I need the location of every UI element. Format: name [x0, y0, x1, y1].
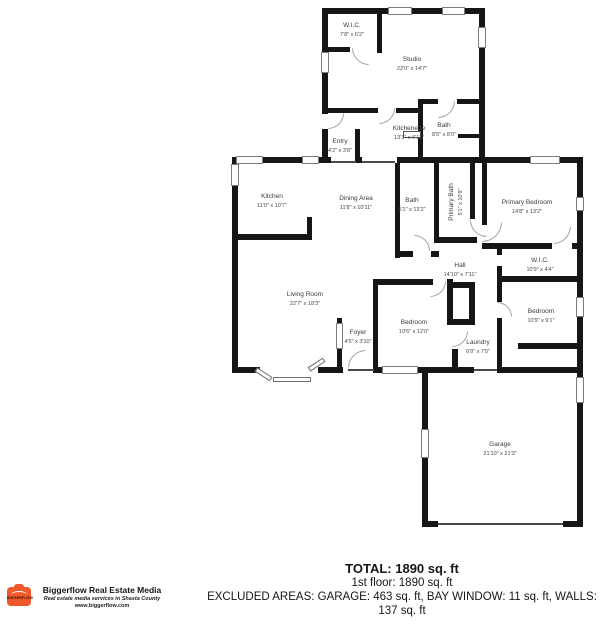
wall	[307, 217, 312, 240]
room-name: Hall	[444, 261, 477, 271]
room-name: W.I.C.	[526, 256, 553, 266]
wall	[497, 243, 552, 249]
wall	[457, 99, 484, 104]
room-name: Kitchen	[257, 192, 287, 202]
wall	[377, 8, 382, 53]
excluded-areas-text: EXCLUDED AREAS: GARAGE: 463 sq. ft, BAY …	[202, 590, 600, 618]
room-label-studio: Studio22'0" x 14'7"	[397, 55, 427, 73]
door-arc	[470, 220, 487, 237]
door-threshold	[438, 523, 563, 525]
room-label-bedroom-right: Bedroom10'9" x 9'1"	[527, 307, 554, 325]
room-label-hall: Hall14'10" x 7'11"	[444, 261, 477, 279]
room-name: Bath	[398, 196, 425, 206]
door-arc	[553, 226, 571, 244]
room-label-primary-bedroom: Primary Bedroom14'8" x 13'2"	[502, 198, 553, 216]
wall	[452, 282, 475, 288]
window	[530, 156, 560, 164]
wall	[572, 243, 577, 249]
door-arc	[352, 48, 369, 65]
door-arc	[497, 302, 512, 317]
room-name: Bath	[432, 121, 456, 131]
wall	[469, 282, 475, 324]
window	[231, 164, 239, 186]
room-name: Foyer	[344, 328, 371, 338]
room-name: Studio	[397, 55, 427, 65]
bay-window	[273, 377, 311, 382]
room-name: Primary Bath	[447, 183, 457, 221]
room-label-bedroom-left: Bedroom10'6" x 12'0"	[399, 318, 429, 336]
room-label-foyer: Foyer4'5" x 3'10"	[344, 328, 371, 346]
window	[388, 7, 412, 15]
room-dimensions: 5'1" x 13'2"	[398, 206, 425, 214]
room-dimensions: 11'0" x 10'7"	[257, 202, 287, 210]
room-dimensions: 5'1" x 10'9"	[457, 183, 465, 221]
room-dimensions: 10'6" x 12'0"	[399, 328, 429, 336]
wall	[431, 251, 439, 257]
company-tagline: Real estate media services in Shasta Cou…	[37, 596, 167, 603]
door-threshold	[474, 369, 497, 371]
room-label-garage: Garage21'10" x 21'3"	[483, 440, 516, 458]
wall	[497, 367, 583, 373]
bag-handle-shape	[14, 584, 24, 590]
room-label-wic-primary: W.I.C.10'9" x 4'4"	[526, 256, 553, 274]
room-name: Kitchenette	[393, 124, 426, 134]
wall	[497, 243, 502, 255]
wall	[375, 279, 433, 285]
door-arc	[438, 101, 455, 118]
company-text-block: Biggerflow Real Estate Media Real estate…	[37, 585, 167, 610]
wall	[395, 251, 413, 257]
room-label-kitchenette: Kitchenette13'3" x 6'11"	[393, 124, 426, 142]
wall	[497, 318, 502, 373]
room-dimensions: 22'7" x 18'3"	[287, 300, 323, 308]
room-label-laundry: Laundry6'9" x 7'5"	[466, 338, 490, 356]
wall	[434, 237, 477, 243]
window	[421, 429, 429, 458]
room-dimensions: 11'8" x 10'11"	[339, 204, 373, 212]
total-area-text: TOTAL: 1890 sq. ft	[202, 561, 600, 576]
area-summary: TOTAL: 1890 sq. ft 1st floor: 1890 sq. f…	[202, 561, 600, 624]
bay-window	[255, 367, 273, 381]
wall	[458, 134, 484, 138]
room-dimensions: 8'5" x 8'0"	[432, 131, 456, 139]
room-label-bath-studio: Bath8'5" x 8'0"	[432, 121, 456, 139]
room-dimensions: 6'9" x 7'5"	[466, 348, 490, 356]
room-dimensions: 22'0" x 14'7"	[397, 65, 427, 73]
room-name: Bedroom	[399, 318, 429, 328]
room-label-entry: Entry4'2" x 3'8"	[328, 137, 352, 155]
room-dimensions: 21'10" x 21'3"	[483, 450, 516, 458]
wall	[518, 343, 577, 349]
door-threshold	[362, 161, 395, 163]
room-name: Garage	[483, 440, 516, 450]
door-threshold	[331, 161, 356, 163]
camera-bag-icon: BIGGERFLOW	[7, 587, 31, 606]
wall	[418, 99, 438, 104]
window	[236, 156, 263, 164]
room-label-wic-studio: W.I.C.7'8" x 6'2"	[340, 21, 364, 39]
room-dimensions: 4'2" x 3'8"	[328, 147, 352, 155]
room-name: Bedroom	[527, 307, 554, 317]
wall	[422, 521, 438, 527]
wall	[563, 521, 583, 527]
wall	[373, 279, 378, 373]
room-name: Entry	[328, 137, 352, 147]
room-dimensions: 10'9" x 9'1"	[527, 317, 554, 325]
badge-text: BIGGERFLOW	[7, 596, 31, 600]
room-label-dining-area: Dining Area11'8" x 10'11"	[339, 194, 373, 212]
wall	[452, 349, 458, 367]
door-arc	[430, 281, 446, 297]
floorplan-page: W.I.C.7'8" x 6'2"Studio22'0" x 14'7"Kitc…	[0, 0, 600, 624]
wall	[497, 276, 577, 282]
window	[576, 377, 584, 403]
room-dimensions: 14'8" x 13'2"	[502, 208, 553, 216]
room-dimensions: 7'8" x 6'2"	[340, 31, 364, 39]
room-label-primary-bath: Primary Bath5'1" x 10'9"	[447, 183, 465, 221]
company-name: Biggerflow Real Estate Media	[37, 585, 167, 596]
wall	[397, 157, 530, 163]
room-dimensions: 14'10" x 7'11"	[444, 271, 477, 279]
company-website: www.biggerflow.com	[37, 603, 167, 610]
wall	[470, 163, 475, 219]
room-label-bath-main: Bath5'1" x 13'2"	[398, 196, 425, 214]
wall	[232, 234, 312, 240]
room-name: Primary Bedroom	[502, 198, 553, 208]
door-arc	[328, 113, 344, 129]
wall	[482, 163, 487, 225]
window	[442, 7, 465, 15]
room-name: Living Room	[287, 290, 323, 300]
room-dimensions: 10'9" x 4'4"	[526, 266, 553, 274]
room-name: Laundry	[466, 338, 490, 348]
door-arc	[379, 108, 395, 124]
door-arc	[414, 235, 430, 251]
room-name: Dining Area	[339, 194, 373, 204]
window	[302, 156, 319, 164]
window	[576, 197, 584, 211]
room-label-kitchen: Kitchen11'0" x 10'7"	[257, 192, 287, 210]
window	[576, 297, 584, 317]
window	[478, 27, 486, 48]
room-dimensions: 4'5" x 3'10"	[344, 338, 371, 346]
door-threshold	[348, 369, 374, 371]
window	[382, 366, 418, 374]
room-dimensions: 13'3" x 6'11"	[393, 134, 426, 142]
wall	[434, 163, 439, 243]
window	[336, 323, 343, 349]
door-arc	[348, 350, 366, 368]
wall	[577, 157, 583, 527]
room-label-living-room: Living Room22'7" x 18'3"	[287, 290, 323, 308]
room-name: W.I.C.	[340, 21, 364, 31]
first-floor-area-text: 1st floor: 1890 sq. ft	[202, 576, 600, 590]
wall	[232, 157, 238, 373]
window	[321, 52, 329, 73]
wall	[497, 282, 502, 302]
